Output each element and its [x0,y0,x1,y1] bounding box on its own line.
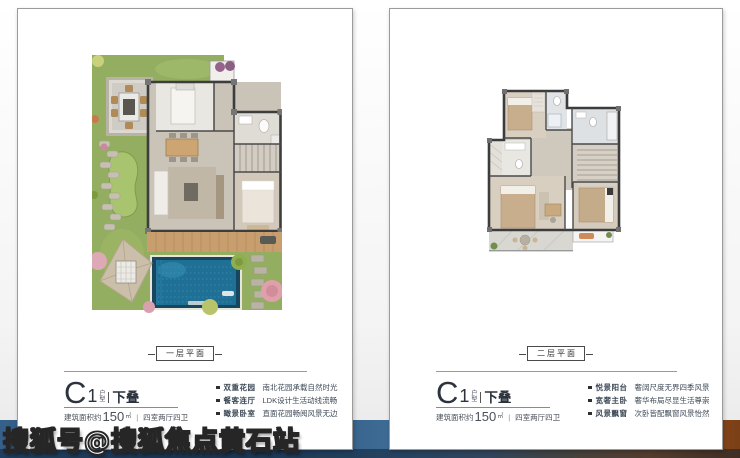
feature-bullet: 宽奢主卧 奢华布局尽显生活尊崇 [588,394,710,407]
divider-line [436,371,677,372]
unit-letter: C [436,381,458,404]
bullet-desc: 奢阔尺度无界四季风景 [635,382,710,393]
bullet-square-icon [588,399,592,403]
feature-bullet: 双重花园 南北花园承载自然时光 [216,381,338,394]
floorplan-card-level2: 二层平面 C 1 户 型 下叠 建筑面积约 150 ㎡ | 四室两厅四卫 悦景阳… [389,8,723,450]
level-label-second-floor: 二层平面 [527,346,585,361]
unit-type-small: 户 型 [471,391,477,403]
unit-title: C 1 户 型 下叠 [64,381,178,408]
unit-title-block: C 1 户 型 下叠 建筑面积约 150 ㎡ | 四室两厅四卫 [436,381,560,422]
divider-line [64,371,307,372]
area-unit: ㎡ [497,412,503,422]
unit-type-char2: 型 [471,397,477,403]
bullet-title: 餐客连厅 [224,395,256,406]
bullet-square-icon [588,386,592,390]
bullet-title: 瞰景卧室 [224,408,256,419]
unit-type-small: 户 型 [99,391,105,403]
area-separator: | [508,414,510,422]
bullet-title: 宽奢主卧 [596,395,628,406]
bullet-desc: 直面花园畅阅风景无边 [263,408,338,419]
title-divider-bar [108,392,109,403]
unit-area-line: 建筑面积约 150 ㎡ | 四室两厅四卫 [436,412,560,422]
feature-bullet: 风景飘窗 次卧皆配飘窗风景怡然 [588,407,710,420]
bullet-title: 风景飘窗 [596,408,628,419]
unit-number: 1 [87,389,97,404]
floorplan-level2-image [487,88,622,258]
unit-title-block: C 1 户 型 下叠 建筑面积约 150 ㎡ | 四室两厅四卫 [64,381,188,422]
feature-bullet: 餐客连厅 LDK设计生活动线流畅 [216,394,338,407]
bullet-desc: 奢华布局尽显生活尊崇 [635,395,710,406]
unit-suffix: 下叠 [112,392,139,404]
unit-number: 1 [459,389,469,404]
area-value: 150 [475,412,497,422]
first-floor-plan-drawing [92,55,282,330]
bullet-title: 悦景阳台 [596,382,628,393]
bullet-desc: LDK设计生活动线流畅 [263,395,338,406]
rooms-label: 四室两厅四卫 [515,414,560,422]
sohu-watermark: 搜狐号@搜狐焦点黄石站 [3,421,300,458]
title-divider-bar [480,392,481,403]
feature-bullet: 瞰景卧室 直面花园畅阅风景无边 [216,407,338,420]
bullet-square-icon [588,412,592,416]
unit-suffix: 下叠 [484,392,511,404]
bullet-square-icon [216,412,220,416]
area-label: 建筑面积约 [436,414,474,422]
bullet-desc: 南北花园承载自然时光 [263,382,338,393]
feature-bullets: 悦景阳台 奢阔尺度无界四季风景 宽奢主卧 奢华布局尽显生活尊崇 风景飘窗 次卧皆… [588,381,710,420]
bullet-desc: 次卧皆配飘窗风景怡然 [635,408,710,419]
second-floor-plan-drawing [487,88,622,253]
unit-type-char2: 型 [99,397,105,403]
bullet-square-icon [216,386,220,390]
floorplan-level1-image [92,55,282,335]
unit-title: C 1 户 型 下叠 [436,381,550,408]
unit-letter: C [64,381,86,404]
floorplan-card-level1: 一层平面 C 1 户 型 下叠 建筑面积约 150 ㎡ | 四室两厅四卫 双重花… [17,8,353,450]
level-label-first-floor: 一层平面 [156,346,214,361]
bullet-square-icon [216,399,220,403]
feature-bullets: 双重花园 南北花园承载自然时光 餐客连厅 LDK设计生活动线流畅 瞰景卧室 直面… [216,381,338,420]
bullet-title: 双重花园 [224,382,256,393]
feature-bullet: 悦景阳台 奢阔尺度无界四季风景 [588,381,710,394]
